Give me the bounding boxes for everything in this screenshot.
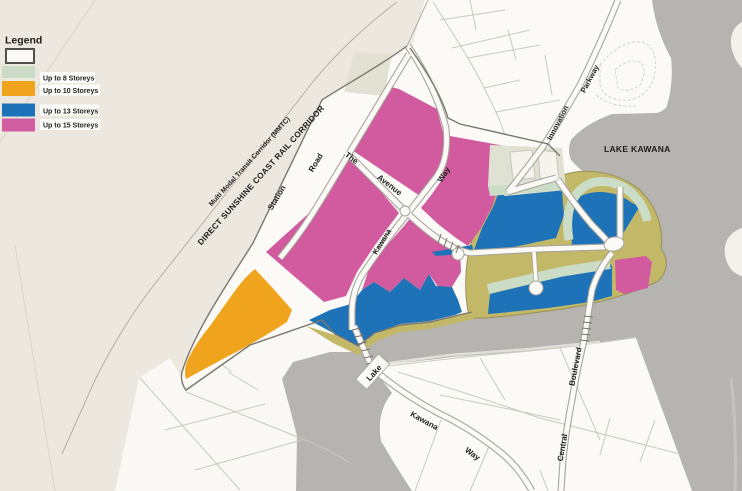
svg-text:Up to 15 Storeys: Up to 15 Storeys bbox=[43, 123, 98, 130]
svg-text:Legend: Legend bbox=[5, 35, 42, 47]
svg-text:LAKE KAWANA: LAKE KAWANA bbox=[604, 144, 671, 154]
svg-text:Up to 8 Storeys: Up to 8 Storeys bbox=[43, 75, 94, 82]
svg-text:Up to 13 Storeys: Up to 13 Storeys bbox=[43, 108, 98, 115]
svg-text:Up to 10 Storeys: Up to 10 Storeys bbox=[43, 88, 98, 95]
